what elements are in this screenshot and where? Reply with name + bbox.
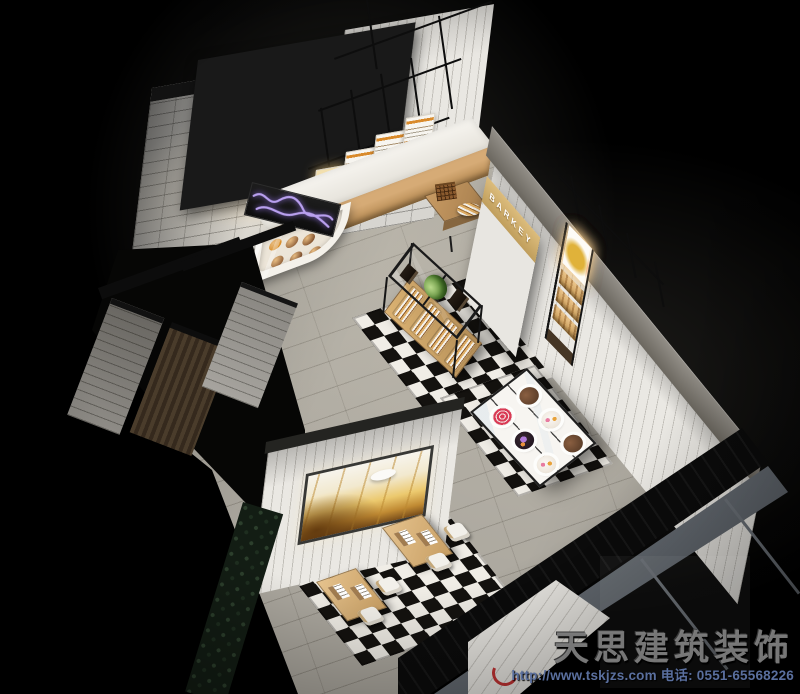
bakery-interior-render: BARKEY — [0, 0, 800, 694]
table-menu-card — [416, 529, 439, 546]
table-menu-card — [350, 583, 373, 600]
table-menu-card — [328, 583, 351, 600]
bread-basket — [435, 182, 457, 202]
cooler-door-right — [481, 201, 483, 205]
bread-plate — [457, 203, 481, 216]
packaged-bread-stack — [399, 263, 418, 284]
table-menu-card — [394, 529, 417, 546]
decor-plant — [419, 270, 451, 305]
watermark-contact: http://www.tskjzs.com 电话: 0551-65568226 — [511, 664, 794, 684]
packaged-bread-stack — [448, 288, 469, 312]
